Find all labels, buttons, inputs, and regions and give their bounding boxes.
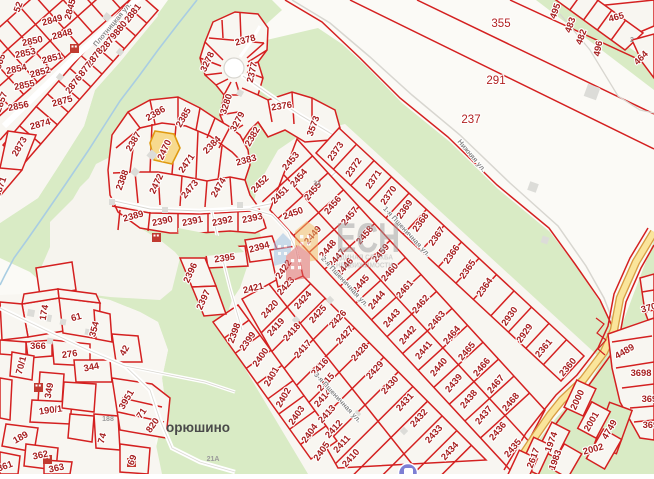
svg-text:3696: 3696 [643, 419, 654, 430]
svg-text:366: 366 [30, 340, 46, 351]
svg-text:3698: 3698 [631, 367, 652, 378]
svg-text:НЕДВИЖИМОСТИ: НЕДВИЖИМОСТИ [336, 261, 393, 270]
svg-text:2: 2 [630, 37, 634, 44]
svg-text:орюшино: орюшино [166, 420, 230, 435]
svg-text:188: 188 [102, 416, 114, 423]
svg-text:355: 355 [491, 18, 510, 30]
svg-text:237: 237 [461, 114, 480, 126]
svg-text:291: 291 [486, 75, 505, 87]
svg-text:276: 276 [61, 347, 78, 360]
svg-text:3695: 3695 [642, 393, 654, 404]
svg-text:33: 33 [313, 180, 321, 187]
svg-text:21А: 21А [207, 456, 220, 463]
